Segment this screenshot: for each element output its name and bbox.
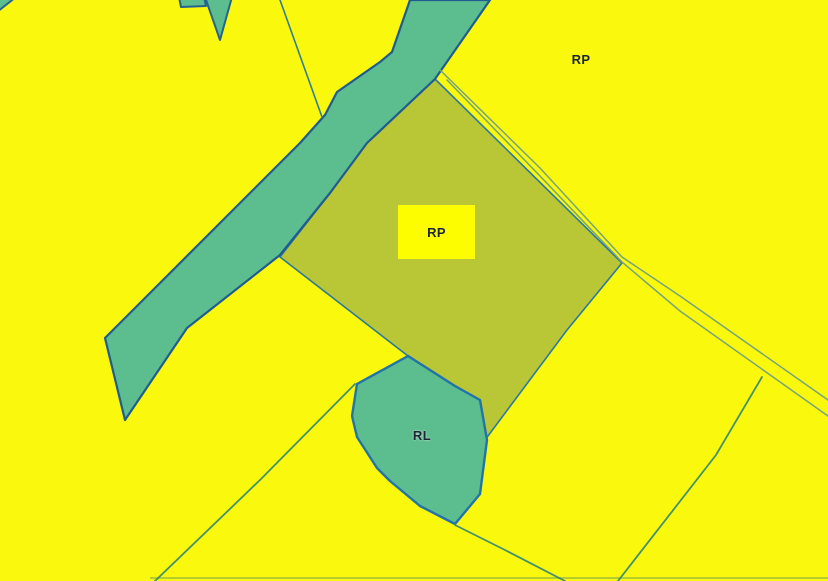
zone-green-sliver-top[interactable] bbox=[179, 0, 206, 7]
parcel-label-box: RP bbox=[398, 205, 475, 259]
parcel-label-rp-center: RP bbox=[427, 225, 446, 240]
map-viewport[interactable]: RP RP RL bbox=[0, 0, 828, 581]
zone-label-rl: RL bbox=[398, 428, 446, 443]
zoning-map-canvas bbox=[0, 0, 828, 581]
zone-label-rp-northeast: RP bbox=[563, 52, 599, 67]
